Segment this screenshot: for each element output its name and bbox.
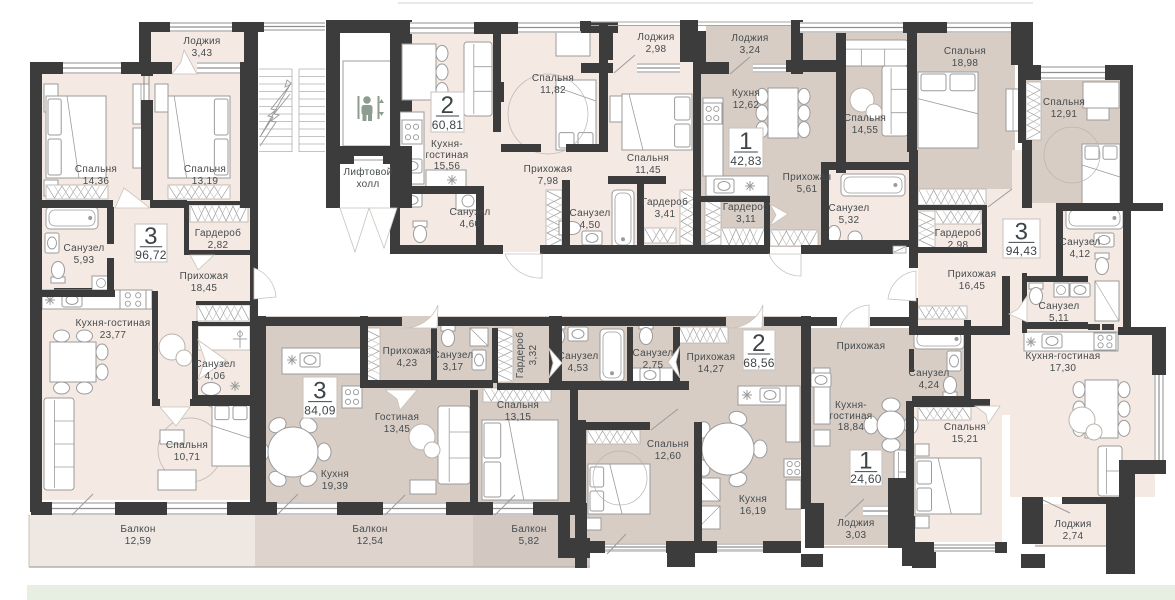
svg-text:Лифтовой: Лифтовой: [344, 166, 393, 178]
svg-text:Спальня: Спальня: [184, 164, 226, 175]
svg-text:Спальня: Спальня: [647, 439, 689, 450]
svg-text:12,62: 12,62: [733, 100, 760, 111]
svg-text:Санузел: Санузел: [1059, 237, 1100, 248]
svg-text:Кухня-: Кухня-: [835, 400, 867, 411]
svg-text:2,98: 2,98: [948, 240, 969, 251]
svg-text:18,84: 18,84: [838, 422, 865, 433]
svg-text:1: 1: [739, 128, 753, 155]
svg-text:11,45: 11,45: [635, 165, 661, 176]
svg-text:4,23: 4,23: [397, 358, 418, 369]
svg-text:15,56: 15,56: [434, 161, 461, 172]
svg-text:60,81: 60,81: [432, 118, 464, 132]
svg-text:Спальня: Спальня: [166, 440, 208, 451]
svg-text:гостиная: гостиная: [425, 150, 468, 161]
svg-text:16,45: 16,45: [959, 281, 986, 292]
svg-text:Прихожая: Прихожая: [524, 164, 573, 175]
svg-text:Лоджия: Лоджия: [837, 518, 874, 529]
svg-text:3,41: 3,41: [655, 209, 676, 220]
svg-text:2,98: 2,98: [646, 44, 667, 55]
svg-text:Лоджия: Лоджия: [637, 32, 674, 43]
svg-text:14,27: 14,27: [698, 364, 725, 375]
svg-text:Санузел: Санузел: [194, 359, 235, 370]
svg-text:14,55: 14,55: [852, 125, 879, 136]
svg-text:4,06: 4,06: [205, 371, 226, 382]
svg-text:Санузел: Санузел: [908, 368, 949, 379]
svg-text:Лоджия: Лоджия: [1054, 519, 1091, 530]
svg-text:3: 3: [1015, 218, 1029, 245]
svg-text:2,75: 2,75: [643, 360, 664, 371]
svg-text:Санузел: Санузел: [1038, 301, 1079, 312]
svg-text:3,03: 3,03: [846, 530, 867, 541]
svg-text:Гардероб: Гардероб: [514, 332, 526, 378]
svg-text:3,11: 3,11: [736, 214, 756, 225]
svg-text:2: 2: [752, 330, 766, 357]
svg-text:Гардероб: Гардероб: [935, 227, 981, 239]
svg-text:13,15: 13,15: [505, 412, 532, 423]
svg-text:Балкон: Балкон: [352, 524, 387, 535]
svg-text:холл: холл: [356, 179, 379, 190]
svg-text:13,19: 13,19: [192, 176, 219, 187]
svg-text:5,61: 5,61: [797, 184, 818, 195]
svg-text:24,60: 24,60: [850, 472, 882, 486]
svg-text:гостиная: гостиная: [829, 411, 872, 422]
svg-text:3: 3: [144, 223, 158, 250]
svg-text:Спальня: Спальня: [532, 73, 574, 84]
svg-text:17,30: 17,30: [1050, 363, 1077, 374]
svg-text:Спальня: Спальня: [944, 422, 986, 433]
svg-text:Санузел: Санузел: [569, 208, 610, 219]
svg-text:Спальня: Спальня: [75, 164, 117, 175]
svg-text:4,12: 4,12: [1070, 249, 1091, 260]
svg-text:Прихожая: Прихожая: [837, 341, 886, 352]
svg-text:15,21: 15,21: [952, 434, 979, 445]
svg-text:3,43: 3,43: [192, 48, 213, 59]
svg-text:Спальня: Спальня: [944, 46, 986, 57]
svg-text:Спальня: Спальня: [497, 400, 539, 411]
svg-text:13,45: 13,45: [384, 424, 411, 435]
svg-text:23,77: 23,77: [100, 330, 127, 341]
svg-text:3,32: 3,32: [528, 345, 539, 366]
svg-text:4,24: 4,24: [919, 380, 940, 391]
svg-text:3,17: 3,17: [443, 362, 464, 373]
svg-text:10,71: 10,71: [174, 452, 201, 463]
svg-text:12,91: 12,91: [1051, 109, 1078, 120]
svg-text:12,54: 12,54: [357, 536, 384, 547]
svg-text:Спальня: Спальня: [1043, 97, 1085, 108]
svg-text:2: 2: [441, 92, 455, 119]
svg-text:Спальня: Спальня: [627, 153, 669, 164]
svg-text:Кухня: Кухня: [321, 469, 349, 480]
svg-text:4,50: 4,50: [580, 220, 601, 231]
svg-text:3: 3: [313, 377, 327, 404]
svg-text:18,98: 18,98: [952, 58, 979, 69]
svg-text:5,11: 5,11: [1049, 313, 1069, 324]
svg-text:1: 1: [859, 448, 873, 475]
svg-text:5,93: 5,93: [74, 255, 95, 266]
svg-text:7,98: 7,98: [538, 176, 559, 187]
svg-text:Лоджия: Лоджия: [731, 33, 768, 44]
svg-text:Кухня-гостиная: Кухня-гостиная: [76, 318, 151, 329]
svg-text:Кухня-гостиная: Кухня-гостиная: [1026, 351, 1101, 362]
svg-text:Кухня: Кухня: [732, 88, 760, 99]
svg-text:Гардероб: Гардероб: [195, 227, 241, 239]
svg-text:5,82: 5,82: [519, 536, 540, 547]
svg-text:Санузел: Санузел: [63, 243, 104, 254]
svg-text:Балкон: Балкон: [511, 524, 546, 535]
svg-text:Прихожая: Прихожая: [948, 269, 997, 280]
svg-text:4,60: 4,60: [460, 219, 481, 230]
svg-text:Кухня: Кухня: [739, 494, 767, 505]
svg-text:84,09: 84,09: [304, 404, 336, 418]
svg-text:Гардероб: Гардероб: [723, 201, 769, 213]
svg-text:14,36: 14,36: [83, 176, 110, 187]
svg-text:Прихожая: Прихожая: [383, 346, 432, 357]
svg-text:Кухня-: Кухня-: [431, 139, 463, 150]
svg-text:12,60: 12,60: [655, 451, 682, 462]
svg-text:4,53: 4,53: [568, 363, 589, 374]
svg-text:Гостиная: Гостиная: [375, 412, 419, 423]
svg-text:2,74: 2,74: [1063, 531, 1084, 542]
svg-text:Санузел: Санузел: [449, 207, 490, 218]
svg-text:11,82: 11,82: [540, 85, 566, 96]
svg-text:3,24: 3,24: [740, 45, 761, 56]
svg-text:Гардероб: Гардероб: [642, 196, 688, 208]
svg-text:Спальня: Спальня: [844, 113, 886, 124]
svg-text:Прихожая: Прихожая: [783, 172, 832, 183]
svg-text:42,83: 42,83: [730, 154, 762, 168]
svg-text:Санузел: Санузел: [557, 351, 598, 362]
svg-text:Санузел: Санузел: [828, 203, 869, 214]
svg-text:19,39: 19,39: [322, 481, 349, 492]
svg-text:Санузел: Санузел: [632, 348, 673, 359]
svg-text:2,82: 2,82: [208, 240, 229, 251]
svg-text:5,32: 5,32: [839, 215, 860, 226]
svg-text:94,43: 94,43: [1006, 244, 1038, 258]
svg-text:16,19: 16,19: [740, 506, 767, 517]
svg-text:12,59: 12,59: [125, 536, 152, 547]
svg-text:Прихожая: Прихожая: [180, 271, 229, 282]
svg-text:Санузел: Санузел: [432, 350, 473, 361]
svg-text:96,72: 96,72: [135, 248, 167, 262]
svg-text:18,45: 18,45: [191, 283, 218, 294]
svg-text:Прихожая: Прихожая: [687, 352, 736, 363]
svg-text:Лоджия: Лоджия: [183, 36, 220, 47]
svg-text:68,56: 68,56: [743, 356, 775, 370]
svg-text:Балкон: Балкон: [120, 524, 155, 535]
